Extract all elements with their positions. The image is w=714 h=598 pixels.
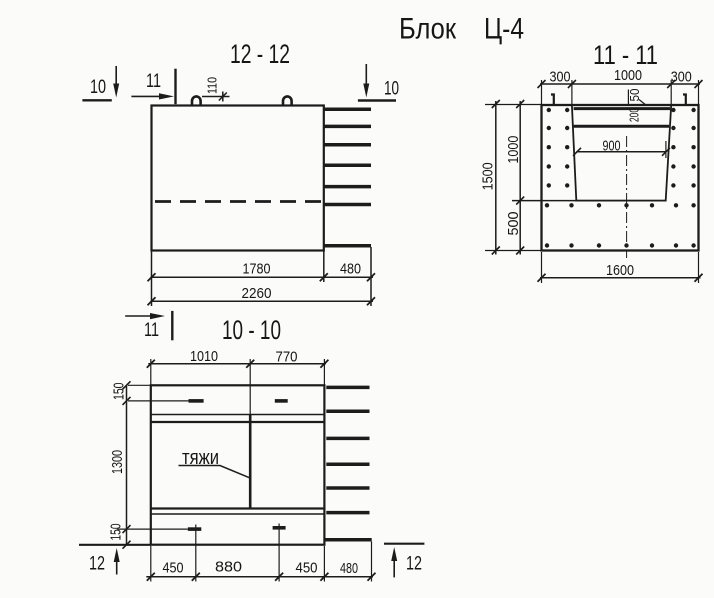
- svg-text:Блок: Блок: [399, 13, 457, 46]
- svg-text:1780: 1780: [243, 261, 271, 278]
- svg-text:10: 10: [384, 79, 399, 100]
- svg-text:11: 11: [144, 320, 159, 341]
- svg-text:1300: 1300: [109, 450, 126, 474]
- svg-text:150: 150: [111, 383, 128, 401]
- svg-text:Ц-4: Ц-4: [484, 13, 524, 46]
- svg-text:12: 12: [89, 554, 105, 575]
- svg-text:450: 450: [163, 560, 184, 577]
- svg-text:300: 300: [550, 69, 571, 86]
- svg-text:1500: 1500: [480, 162, 497, 190]
- svg-text:10 - 10: 10 - 10: [222, 315, 281, 345]
- svg-text:300: 300: [671, 69, 692, 86]
- svg-text:12 - 12: 12 - 12: [230, 39, 290, 69]
- svg-text:480: 480: [340, 560, 358, 577]
- svg-text:1600: 1600: [606, 262, 634, 279]
- svg-text:450: 450: [296, 560, 318, 577]
- svg-text:880: 880: [215, 559, 242, 576]
- svg-text:110: 110: [205, 77, 220, 94]
- svg-text:150: 150: [108, 524, 125, 541]
- svg-text:500: 500: [505, 212, 522, 236]
- svg-text:200: 200: [627, 108, 642, 122]
- svg-text:1000: 1000: [614, 67, 642, 84]
- svg-text:10: 10: [90, 77, 106, 98]
- svg-text:11: 11: [146, 71, 161, 92]
- svg-text:480: 480: [340, 261, 361, 278]
- svg-text:12: 12: [406, 554, 422, 575]
- svg-text:1010: 1010: [190, 348, 218, 365]
- svg-text:11 - 11: 11 - 11: [593, 40, 658, 70]
- svg-text:1000: 1000: [505, 136, 522, 164]
- svg-text:770: 770: [276, 349, 298, 366]
- svg-text:2260: 2260: [242, 285, 272, 302]
